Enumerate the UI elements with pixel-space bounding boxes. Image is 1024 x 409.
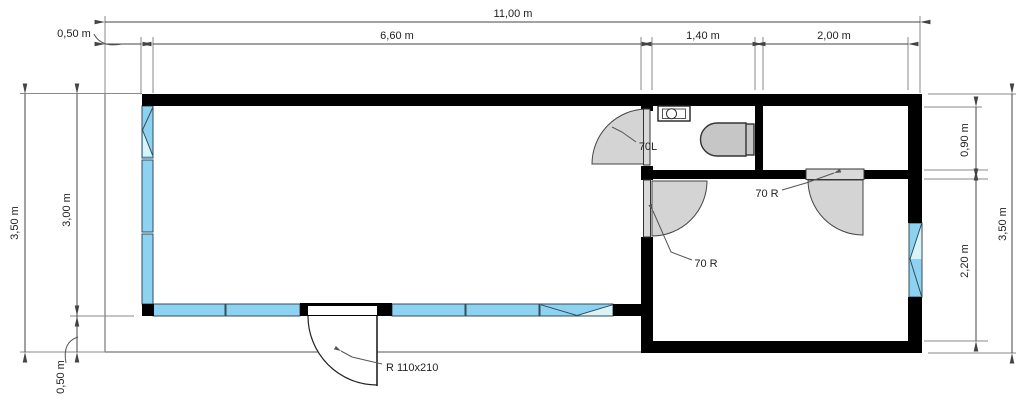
room-top-door-swing xyxy=(808,180,863,235)
bottom-window-segment-4 xyxy=(466,304,539,316)
dim-left-total-label: 3,50 m xyxy=(9,206,21,240)
south-wall-right-room xyxy=(645,341,922,353)
bottom-window-segment-3 xyxy=(392,304,465,316)
dim-storage-label: 2,00 m xyxy=(817,30,851,42)
middle-wall-right-segment xyxy=(864,170,908,179)
sink-basin-icon xyxy=(667,109,677,119)
dim-left-terrace-leader xyxy=(65,337,78,363)
dim-total-width-label: 11,00 m xyxy=(494,8,533,20)
floor-plan-page: 11,00 m 0,50 m 6,60 m 1,40 m 2,00 m 3,50… xyxy=(0,0,1024,409)
dimensions-left: 3,50 m 3,00 m 0,50 m xyxy=(9,94,142,394)
entry-door-swing-fill xyxy=(308,316,377,385)
middle-wall-left-segment xyxy=(641,170,806,179)
south-wall-right-corner xyxy=(613,304,645,316)
dim-right-total-label: 3,50 m xyxy=(997,207,1009,241)
bathroom-right-wall xyxy=(755,106,763,170)
south-wall-left-corner xyxy=(142,304,154,316)
bath-door-swing xyxy=(592,109,647,164)
windows xyxy=(142,106,922,316)
east-wall-lower xyxy=(908,297,922,341)
dim-left-building-label: 3,00 m xyxy=(61,193,73,227)
room-top-door-leaf xyxy=(806,169,864,180)
divider-wall-bottom xyxy=(641,237,653,353)
dim-bath-label: 1,40 m xyxy=(686,30,720,42)
left-window-segment-2 xyxy=(142,160,153,232)
bathroom-fixtures xyxy=(658,106,754,156)
dim-right-room-label: 2,20 m xyxy=(959,244,971,278)
room-side-door-leaf xyxy=(644,180,651,237)
floor-plan-canvas: 11,00 m 0,50 m 6,60 m 1,40 m 2,00 m 3,50… xyxy=(0,0,1024,409)
entry-door-label: R 110x210 xyxy=(386,362,438,374)
dim-right-storage-label: 0,90 m xyxy=(959,123,971,157)
bath-door-label: 70L xyxy=(639,141,657,153)
room-side-door-label: 70 R xyxy=(694,258,717,270)
bottom-window-segment-1 xyxy=(153,304,225,316)
entry-door-opening xyxy=(308,306,377,315)
dimensions-top: 11,00 m 0,50 m 6,60 m 1,40 m 2,00 m xyxy=(57,8,920,93)
room-top-door-label: 70 R xyxy=(755,188,778,200)
east-wall-upper xyxy=(908,106,922,223)
dim-living-label: 6,60 m xyxy=(380,30,414,42)
north-wall xyxy=(142,94,922,106)
toilet-bowl xyxy=(701,123,746,156)
bath-door-leaf xyxy=(644,109,651,165)
dim-offset-leader xyxy=(94,34,122,45)
dim-offset-label: 0,50 m xyxy=(57,28,91,40)
left-window-segment-3 xyxy=(142,234,153,304)
dimensions-right: 0,90 m 2,20 m 3,50 m xyxy=(924,94,1016,353)
bottom-window-segment-2 xyxy=(226,304,300,316)
dim-left-terrace-label: 0,50 m xyxy=(55,360,67,394)
